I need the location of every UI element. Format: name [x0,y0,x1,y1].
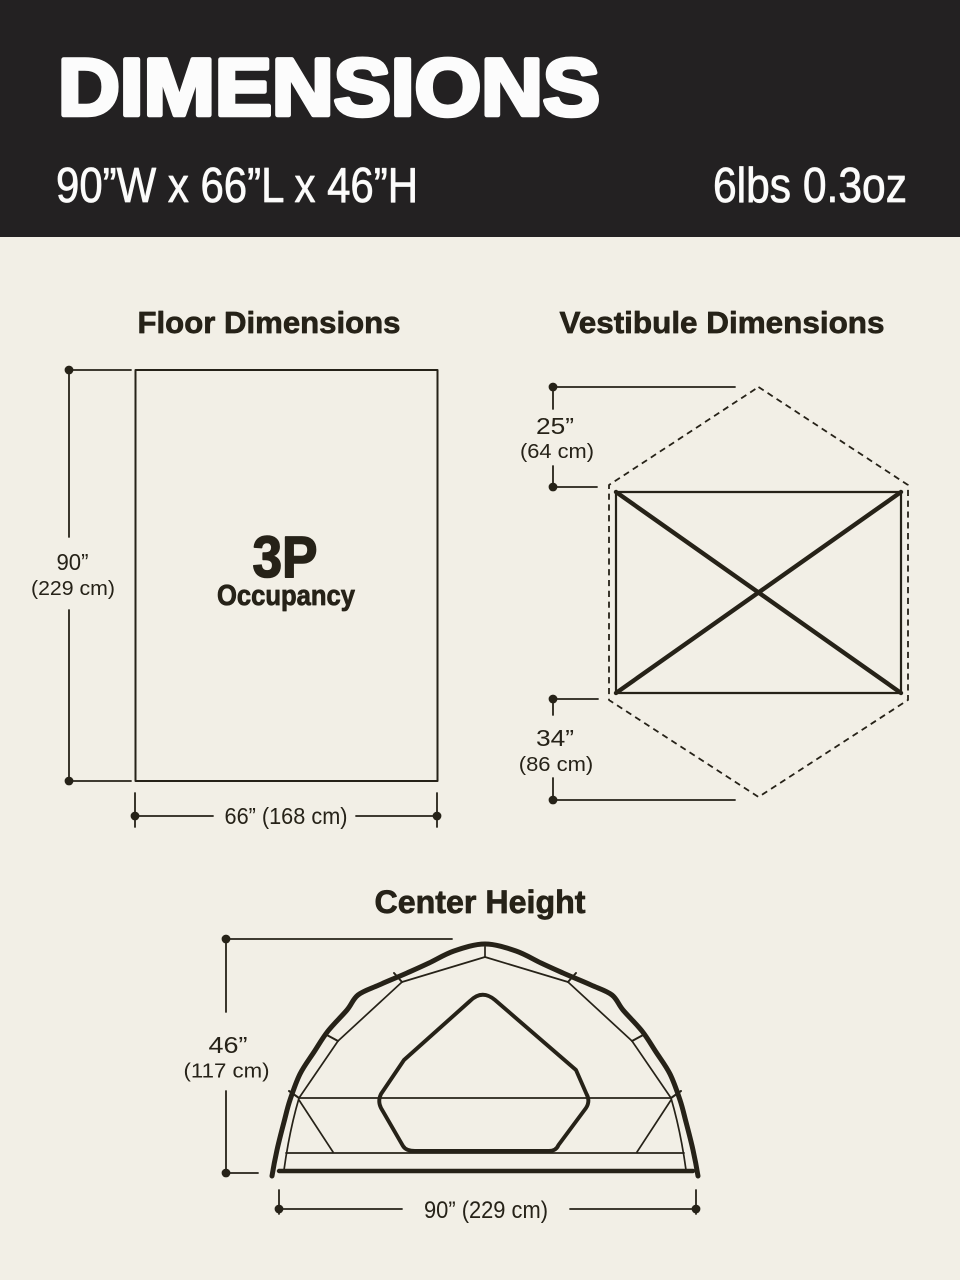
svg-text:6lbs 0.3oz: 6lbs 0.3oz [713,159,907,213]
svg-text:25”: 25” [536,413,574,439]
svg-text:90”W x 66”L x 46”H: 90”W x 66”L x 46”H [56,159,418,213]
svg-text:(64 cm): (64 cm) [520,440,594,463]
svg-text:DIMENSIONS: DIMENSIONS [58,43,600,133]
svg-text:Occupancy: Occupancy [217,580,355,612]
svg-text:66” (168 cm): 66” (168 cm) [225,803,348,829]
svg-text:34”: 34” [536,725,574,751]
svg-text:Center Height: Center Height [375,884,586,920]
svg-text:90” (229 cm): 90” (229 cm) [424,1197,548,1224]
svg-text:(117 cm): (117 cm) [184,1060,270,1083]
svg-text:Floor Dimensions: Floor Dimensions [138,305,401,340]
svg-text:(86 cm): (86 cm) [519,753,594,776]
svg-text:46”: 46” [209,1032,248,1058]
svg-text:(229 cm): (229 cm) [31,577,115,600]
svg-text:90”: 90” [57,549,89,575]
svg-text:Vestibule Dimensions: Vestibule Dimensions [560,305,885,340]
